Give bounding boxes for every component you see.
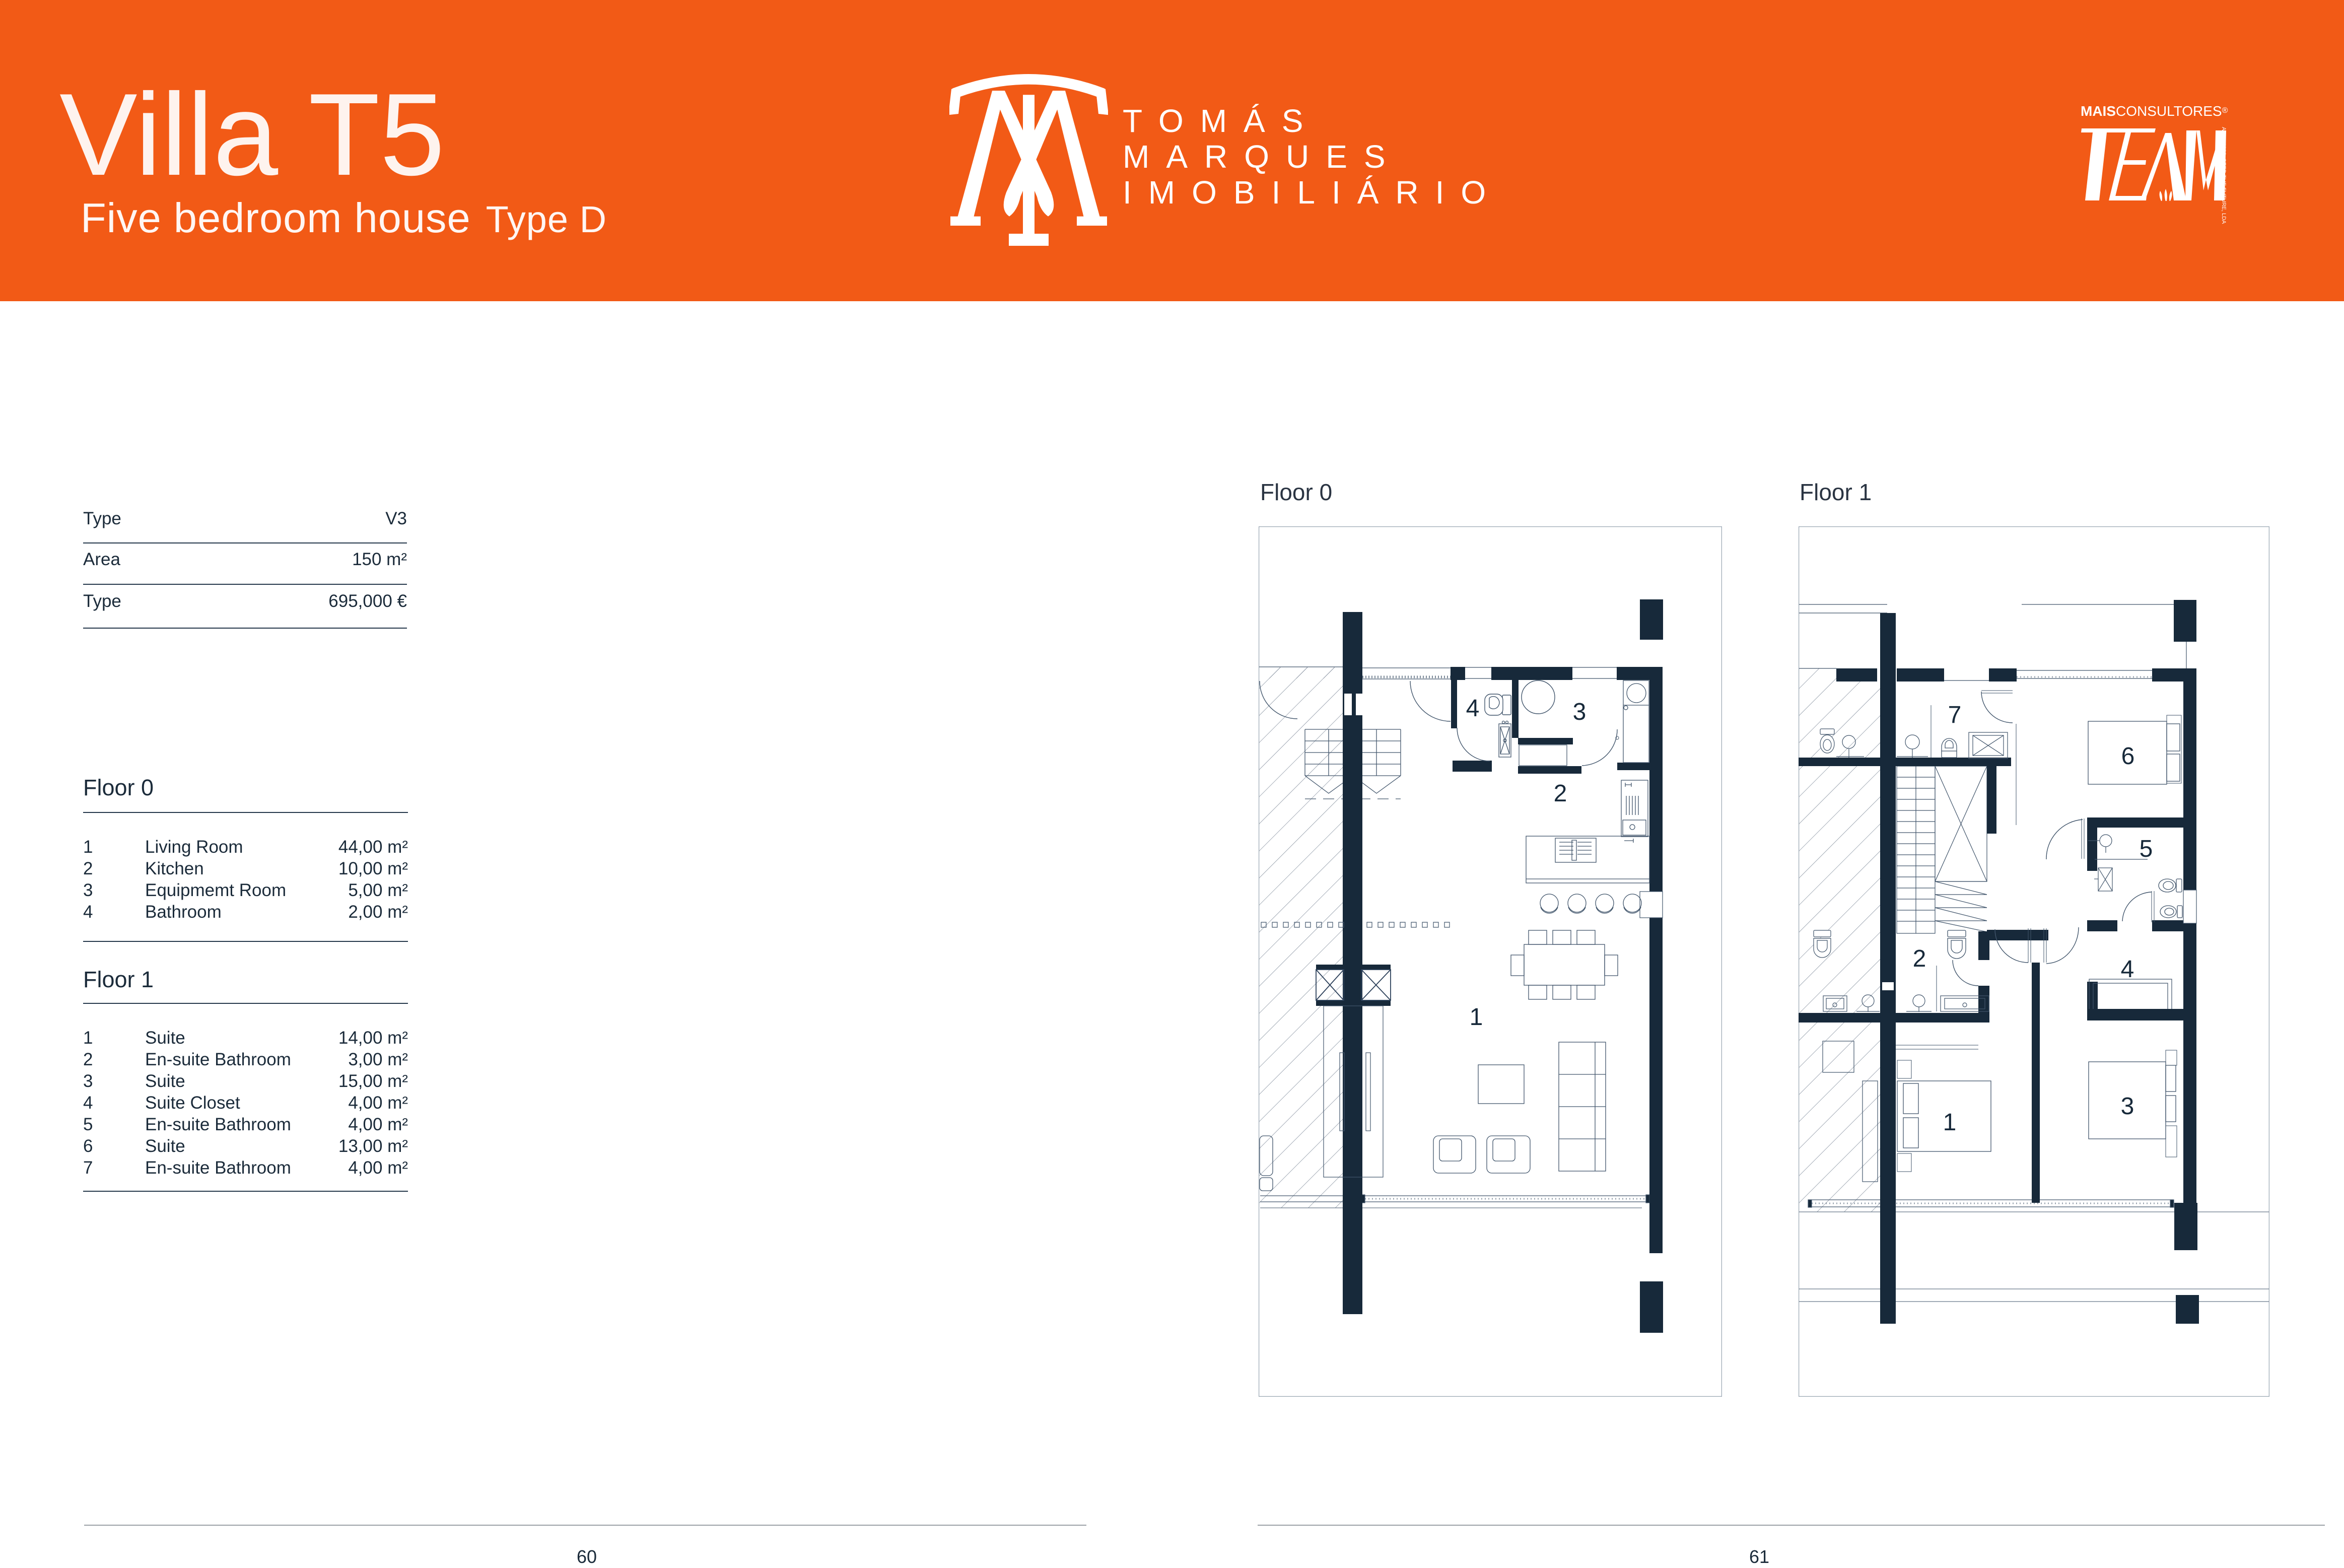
svg-text:4: 4 (2121, 956, 2134, 983)
svg-text:7: 7 (1948, 702, 1962, 728)
svg-text:1: 1 (1943, 1109, 1957, 1136)
svg-text:3: 3 (2121, 1093, 2134, 1120)
svg-text:2: 2 (1554, 780, 1567, 807)
svg-text:2: 2 (1913, 945, 1926, 972)
svg-text:3: 3 (1573, 699, 1587, 725)
svg-text:5: 5 (2140, 836, 2153, 862)
svg-text:4: 4 (1466, 695, 1480, 722)
svg-text:1: 1 (1470, 1004, 1483, 1031)
svg-text:6: 6 (2121, 743, 2135, 770)
